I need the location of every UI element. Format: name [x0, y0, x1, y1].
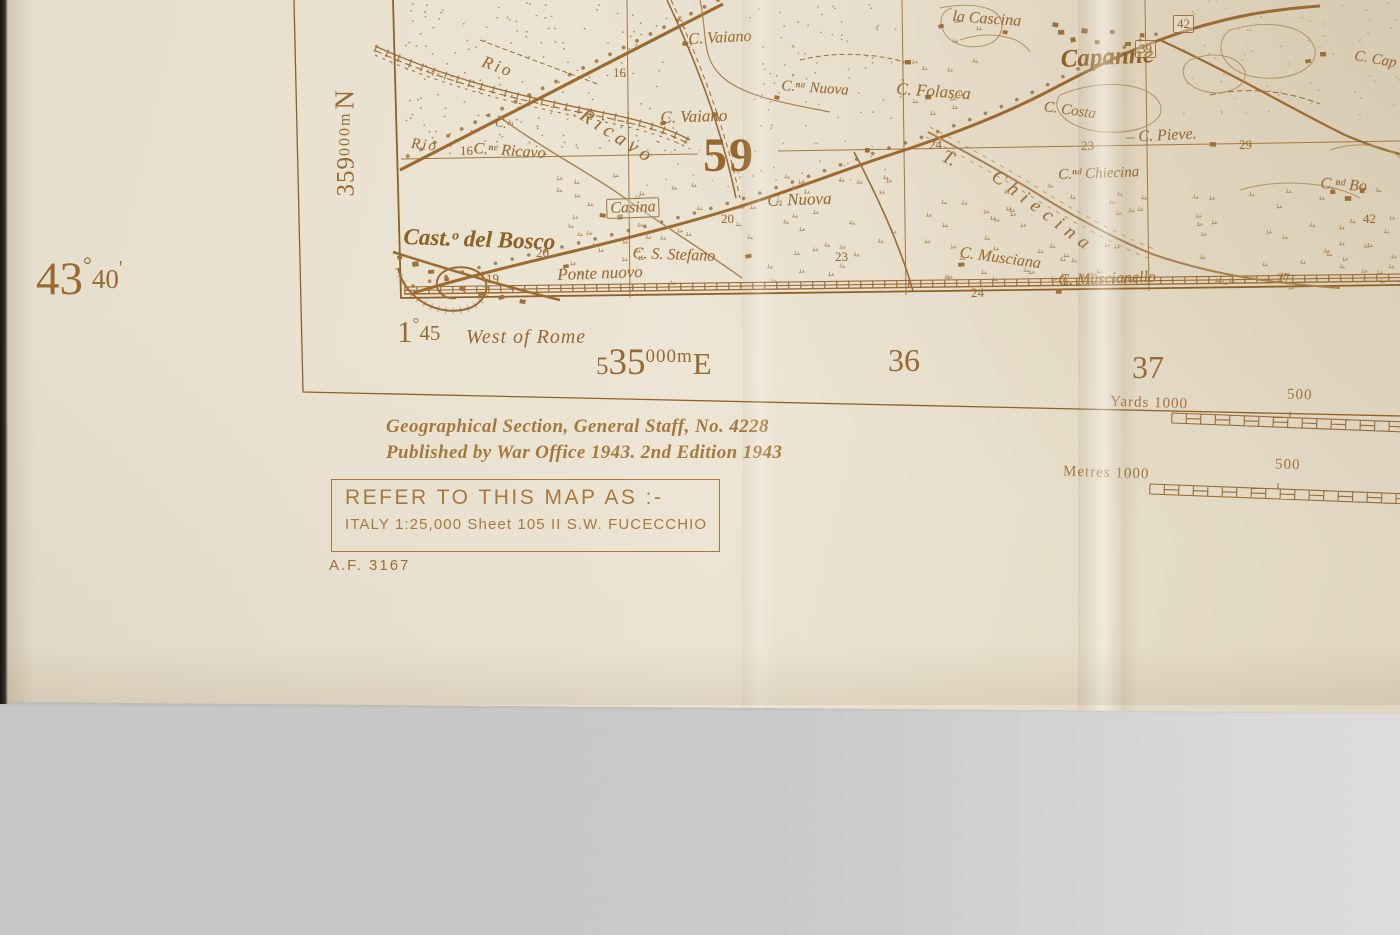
place-label: Ponte nuovo	[557, 262, 643, 285]
contour-lines	[940, 5, 1400, 198]
place-label: C.ⁿᵈ Bo	[1320, 175, 1368, 196]
place-label: Cast.ᵒ del Bosco	[403, 224, 556, 255]
northing-value: 359	[333, 156, 360, 197]
spot-number: 23	[835, 249, 848, 265]
railway-embankment	[375, 46, 690, 149]
place-label: C. Nuova	[767, 189, 832, 211]
spot-number: 27	[1277, 270, 1290, 286]
spot-number: 23	[1081, 138, 1094, 154]
spot-number: 16	[613, 65, 626, 81]
place-label: C.ⁿᵈ Chiecina	[1058, 164, 1140, 184]
spot-number: 24	[971, 285, 984, 301]
west-of-rome-note: West of Rome	[466, 326, 586, 349]
outer-border	[294, 0, 1400, 416]
spot-number: 42	[1173, 15, 1194, 33]
metres-500-label: 500	[1275, 457, 1301, 475]
photo-dark-edge	[0, 0, 8, 704]
refer-title: REFER TO THIS MAP AS :-	[345, 486, 664, 510]
easting-36-label: 36	[888, 342, 920, 379]
yards-500-label: 500	[1287, 387, 1313, 405]
northing-label: 359000mN	[330, 43, 361, 197]
stock-number: A.F. 3167	[329, 557, 410, 574]
refer-sheet-id: ITALY 1:25,000 Sheet 105 II S.W. FUCECCH…	[345, 516, 707, 533]
longitude-label: 1°45	[397, 314, 440, 350]
place-label: Rio	[410, 136, 438, 156]
spot-number: 19	[486, 271, 499, 287]
latitude-label: 43°40'	[36, 252, 122, 306]
metres-scale-bar	[1150, 478, 1400, 504]
easting-37-label: 37	[1132, 349, 1164, 386]
levee-horseshoe	[398, 267, 486, 311]
imprint-line1: Geographical Section, General Staff, No.…	[386, 416, 769, 438]
paper-left-shading	[7, 0, 35, 703]
place-label: C. S. Stefano	[632, 245, 715, 266]
paper-bottom-shading	[0, 645, 1400, 705]
place-label: – C. Pieve.	[1126, 125, 1197, 147]
metres-scale-label: Metres 1000	[1063, 463, 1150, 483]
place-label: C. Vaiano	[688, 28, 752, 49]
spot-number: 29	[1239, 137, 1252, 153]
place-label: C.ˡᵒ	[494, 114, 514, 133]
easting-label: 535000mE	[596, 341, 712, 384]
spot-number: 16	[460, 143, 473, 159]
yards-scale-label: Yards 1000	[1110, 394, 1189, 414]
spot-number: 42	[1363, 211, 1376, 227]
place-label: Casina	[606, 197, 660, 219]
spot-number: 39	[1135, 40, 1156, 58]
grid-number-59: 59	[703, 128, 755, 183]
imprint-line2: Published by War Office 1943. 2nd Editio…	[386, 442, 782, 464]
spot-number: 20	[721, 211, 734, 227]
yards-scale-bar	[1172, 407, 1400, 433]
place-label: C. Muscianello	[1058, 269, 1156, 290]
buildings	[397, 22, 1365, 304]
spot-number: 20	[536, 245, 549, 261]
place-label: C. Vaiano	[660, 106, 728, 128]
refer-box: REFER TO THIS MAP AS :- ITALY 1:25,000 S…	[331, 479, 720, 552]
photo-background: RioRioC.ˡᵒC.ⁿᵉ RicavoRicavoC. VaianoC. V…	[0, 0, 1400, 935]
spot-number: 24	[929, 137, 942, 153]
